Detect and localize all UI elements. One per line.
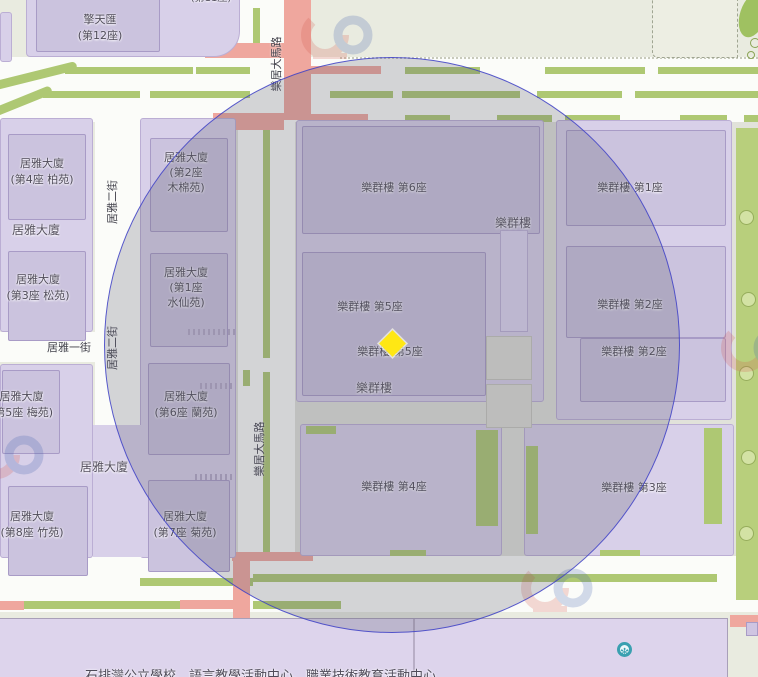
building-label-koi-nga-1: 居雅大廈 (第1座 水仙苑) (142, 265, 230, 310)
courtyard-structure (486, 336, 532, 380)
red-road-vertical (284, 0, 311, 120)
street-label-koi-nga-1st: 居雅一街 (29, 339, 109, 355)
tree-circle-icon (750, 38, 758, 48)
green-strip (196, 67, 250, 74)
street-label-koi-nga-2nd: 居雅二街 (104, 176, 120, 228)
green-accent (704, 428, 722, 524)
green-strip (43, 91, 140, 98)
tower-lok-kwan-2 (566, 246, 726, 338)
building-label-lok-kwan-3: 樂群樓 第3座 (574, 480, 694, 496)
tree-icon (739, 210, 754, 225)
building-small (746, 622, 758, 636)
street-label-lok-koi-avenue: 樂居大馬路 (268, 20, 284, 108)
building-label-koi-nga-3: 居雅大廈 (第3座 松苑) (0, 272, 83, 304)
building-label-koi-nga-5: 居雅大廈 (第5座 梅苑) (0, 389, 69, 421)
green-accent (526, 446, 538, 534)
building-block (0, 12, 12, 62)
building-label-lok-kwan-4: 樂群樓 第4座 (334, 479, 454, 495)
tower-lok-kwan-5 (302, 252, 486, 396)
green-accent (476, 430, 498, 526)
building-label-koi-nga-6: 居雅大廈 (第6座 蘭苑) (140, 389, 232, 421)
building-block-fill (93, 425, 142, 557)
tree-icon (739, 526, 754, 541)
tree-icon (741, 292, 756, 307)
green-strip (402, 91, 520, 98)
tree-icon (741, 450, 756, 465)
building-label-lok-kwan-2: 樂群樓 第2座 (570, 297, 690, 313)
green-accent (600, 550, 640, 556)
tree-circle-icon (747, 51, 755, 59)
map-canvas[interactable]: 石排灣公立學校、語言教學活動中心、職業技術教育活動中心 擎天匯 (第12座) (… (0, 0, 758, 677)
construction-area (652, 0, 738, 58)
green-strip (545, 67, 645, 74)
building-label-lok-kwan-5: 樂群樓 第5座 (310, 299, 430, 315)
green-strip (405, 67, 480, 74)
green-accent (390, 550, 426, 556)
tree-icon (739, 366, 754, 381)
green-strip (253, 601, 341, 609)
road-koi-nga-2nd (95, 118, 140, 425)
red-road-arm (311, 66, 381, 74)
red-road-south (0, 601, 24, 610)
green-strip (150, 91, 250, 98)
facility-icon[interactable]: ✻ (617, 642, 632, 657)
courtyard-structure (486, 384, 532, 428)
green-accent (306, 426, 336, 434)
green-strip (537, 91, 622, 98)
walkway-structure (500, 230, 528, 332)
canopy-hatch (195, 474, 235, 480)
building-label-koi-nga-2: 居雅大廈 (第2座 木棉苑) (142, 150, 230, 195)
green-strip (65, 67, 193, 74)
building-label-lok-kwan-6: 樂群樓 第6座 (334, 180, 454, 196)
green-strip (744, 115, 758, 122)
street-label-lok-koi-avenue: 樂居大馬路 (251, 417, 267, 481)
green-strip (330, 91, 393, 98)
building-label-lok-kwan-1: 樂群樓 第1座 (570, 180, 690, 196)
area-label-lok-kwan: 樂群樓 (483, 215, 543, 231)
green-median (263, 128, 270, 358)
green-strip (635, 91, 758, 98)
green-strip (24, 601, 180, 609)
building-label-koi-nga-4: 居雅大廈 (第4座 柏苑) (0, 156, 87, 188)
tower-lok-kwan-1 (566, 130, 726, 226)
area-label-lok-kwan: 樂群樓 (344, 380, 404, 396)
red-road-south (180, 600, 233, 609)
area-label-koi-nga: 居雅大廈 (76, 459, 132, 475)
building-label-partial: (第11座) (183, 0, 239, 3)
green-strip (253, 574, 717, 582)
facility-label: 石排灣公立學校、語言教學活動中心、職業技術教育活動中心 (85, 669, 436, 677)
street-label-koi-nga-2nd: 居雅二街 (104, 322, 120, 374)
green-median (243, 370, 250, 386)
area-label-koi-nga: 居雅大廈 (8, 222, 64, 238)
building-label-sky-oasis: 擎天匯 (第12座) (40, 12, 160, 44)
canopy-hatch (188, 329, 235, 335)
building-label-koi-nga-8: 居雅大廈 (第8座 竹苑) (0, 509, 77, 541)
green-strip (658, 67, 758, 74)
building-label-lok-kwan-2: 樂群樓 第2座 (574, 344, 694, 360)
red-road-south (233, 552, 250, 622)
building-label-koi-nga-7: 居雅大廈 (第7座 菊苑) (140, 509, 230, 541)
